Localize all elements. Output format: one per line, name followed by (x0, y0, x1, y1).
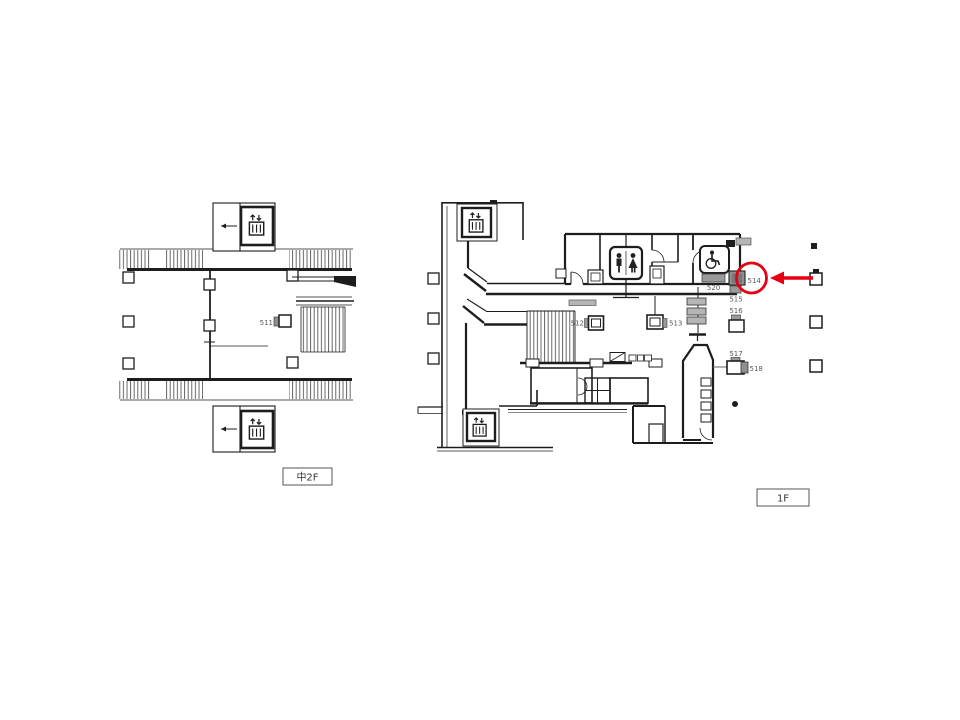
sign-bar (687, 317, 706, 324)
fixture (591, 273, 600, 281)
toilet-icon (610, 234, 642, 298)
sign-515-label: 515 (729, 296, 742, 304)
elevator-south (462, 409, 499, 446)
column (810, 316, 822, 328)
equipment-box (701, 378, 711, 386)
column (428, 313, 439, 324)
mezzanine-plan: 511 中2F (119, 203, 356, 485)
sign-511-label: 511 (260, 319, 273, 327)
sign-517: 517 (713, 350, 744, 374)
door-arc (652, 250, 664, 262)
sign-516: 516 (729, 307, 744, 332)
room (531, 368, 592, 403)
sign-516-label: 516 (729, 307, 743, 315)
equipment-box (645, 355, 652, 361)
column-dot (811, 243, 817, 249)
sign-513-box-inner (650, 318, 660, 326)
platform-edge (334, 276, 356, 287)
stairs-middle (527, 311, 575, 362)
highlight-arrow-head-icon (770, 272, 784, 285)
floorplan-canvas: 511 中2F (0, 0, 960, 720)
sign-518: 518 (741, 362, 763, 373)
equipment-box (701, 390, 711, 398)
column (204, 320, 215, 331)
fixture (653, 269, 661, 278)
mezzanine-walls (119, 249, 356, 400)
door-arc (571, 272, 583, 284)
stairs-hatch (119, 381, 151, 399)
sign-511: 511 (260, 315, 291, 327)
sign-512-box-inner (592, 319, 601, 327)
door-arc (700, 428, 712, 440)
stairs-hatch (527, 311, 575, 362)
column-dot (732, 401, 738, 407)
column (123, 316, 134, 327)
column (810, 360, 822, 372)
station-floor-map: 511 中2F (0, 0, 960, 720)
stairs-hatch (165, 381, 203, 399)
column (123, 358, 134, 369)
column (526, 359, 539, 367)
stairs-hatch (301, 307, 345, 352)
sign-513-label: 513 (669, 320, 682, 328)
equipment-box (701, 414, 711, 422)
sign-512-label: 512 (571, 320, 584, 328)
sign-511-box (279, 315, 291, 327)
sign-518-label: 518 (750, 365, 763, 373)
column (287, 270, 298, 281)
sign-518-box (741, 362, 748, 373)
column (287, 357, 298, 368)
fixture (556, 269, 566, 278)
sign-514-label: 514 (748, 277, 762, 285)
sign-bar (687, 308, 706, 315)
column (726, 240, 735, 247)
column (590, 359, 603, 367)
floor-label-text: 1F (777, 494, 789, 505)
room (610, 378, 648, 403)
sign-513: 513 (647, 296, 682, 329)
column (204, 279, 215, 290)
stairs-hatch (165, 250, 203, 269)
sign-520-label: 520 (707, 284, 720, 292)
floor-label-text: 中2F (296, 471, 318, 484)
toilet-rooms (556, 234, 751, 298)
sign-512-panel (569, 300, 596, 306)
sign-513-tab (663, 319, 667, 328)
column (428, 353, 439, 364)
elevator-south (213, 406, 275, 452)
sign-516-box (729, 320, 744, 332)
first-floor-label: 1F (757, 489, 809, 506)
sign-517-label: 517 (729, 350, 742, 358)
stairs-hatch (119, 250, 151, 269)
wheelchair-icon (700, 246, 729, 273)
elevator-north (457, 200, 497, 241)
right-columns (810, 243, 822, 372)
first-floor-plan: 520 512 (418, 200, 822, 506)
column (123, 272, 134, 283)
column (428, 273, 439, 284)
sign-bar (687, 298, 706, 305)
equipment-box (701, 402, 711, 410)
stairs-hatch (289, 381, 351, 399)
mezzanine-floor-label: 中2F (283, 468, 332, 485)
sign-520-box (702, 274, 725, 282)
room (649, 424, 663, 443)
sign-514: 514 (729, 271, 761, 285)
equipment-box (638, 355, 644, 361)
stairs-hatch (289, 250, 351, 269)
elevator-north (213, 203, 275, 251)
sign-panel (736, 238, 751, 245)
equipment-box (629, 355, 636, 361)
